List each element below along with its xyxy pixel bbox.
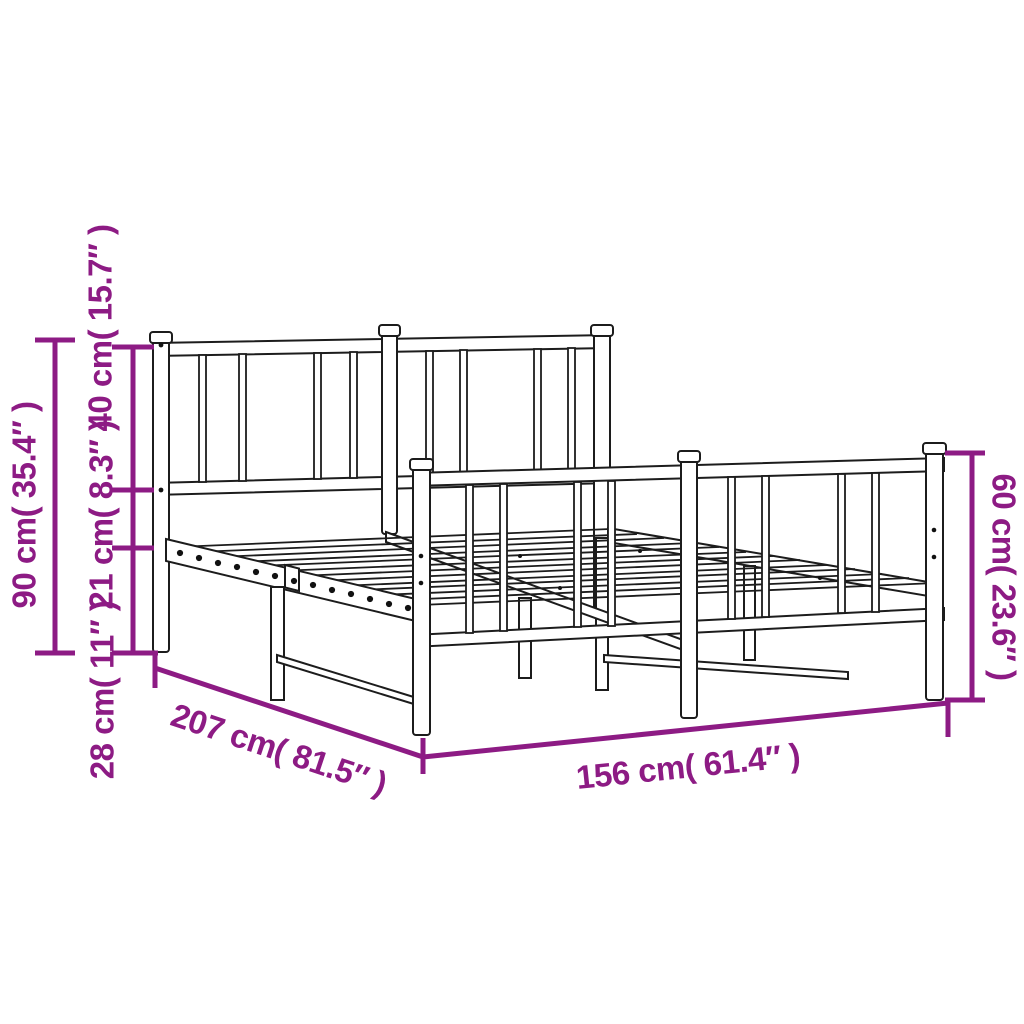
side-rail-left-joint [285, 565, 299, 591]
dim-label-21cm: 21 cm( 8.3″ ) [83, 420, 120, 609]
dim-label-28cm: 28 cm( 11″ ) [84, 601, 121, 780]
headboard-cap-left [150, 332, 172, 343]
support-leg-left-mid [271, 587, 284, 700]
dim-label-60cm: 60 cm( 23.6″ ) [985, 474, 1022, 681]
dimension-footboard-height: 60 cm( 23.6″ ) [945, 453, 1022, 700]
bed-frame-illustration [150, 325, 946, 735]
dimension-headboard-height: 90 cm( 35.4″ ) [6, 340, 75, 653]
headboard-post-center [382, 334, 397, 534]
footboard-post-center [681, 460, 697, 718]
brace-left [277, 655, 417, 705]
footboard-post-right [926, 452, 943, 700]
headboard-cap-right [591, 325, 613, 336]
dim-label-207cm: 207 cm( 81.5″ ) [166, 696, 391, 802]
dim-line-60cm [945, 453, 985, 700]
footboard-cap-center [678, 451, 700, 462]
dim-label-90cm: 90 cm( 35.4″ ) [6, 402, 43, 609]
dimension-length: 207 cm( 81.5″ ) [155, 651, 423, 802]
bed-frame-diagram-canvas: 90 cm( 35.4″ ) 40 cm( 15.7″ ) 21 cm( 8.3… [0, 0, 1024, 1024]
headboard-post-left [153, 341, 169, 652]
brace-right [604, 655, 848, 679]
dim-label-40cm: 40 cm( 15.7″ ) [82, 225, 119, 432]
footboard-cap-left [410, 459, 433, 470]
footboard-cap-right [923, 443, 946, 454]
footboard-post-left [413, 468, 430, 735]
dim-label-156cm: 156 cm( 61.4″ ) [574, 736, 801, 796]
dimension-height-sections: 40 cm( 15.7″ ) 21 cm( 8.3″ ) 28 cm( 11″ … [82, 225, 158, 780]
product-dimension-diagram: 90 cm( 35.4″ ) 40 cm( 15.7″ ) 21 cm( 8.3… [0, 0, 1024, 1024]
headboard-cap-center [379, 325, 400, 336]
